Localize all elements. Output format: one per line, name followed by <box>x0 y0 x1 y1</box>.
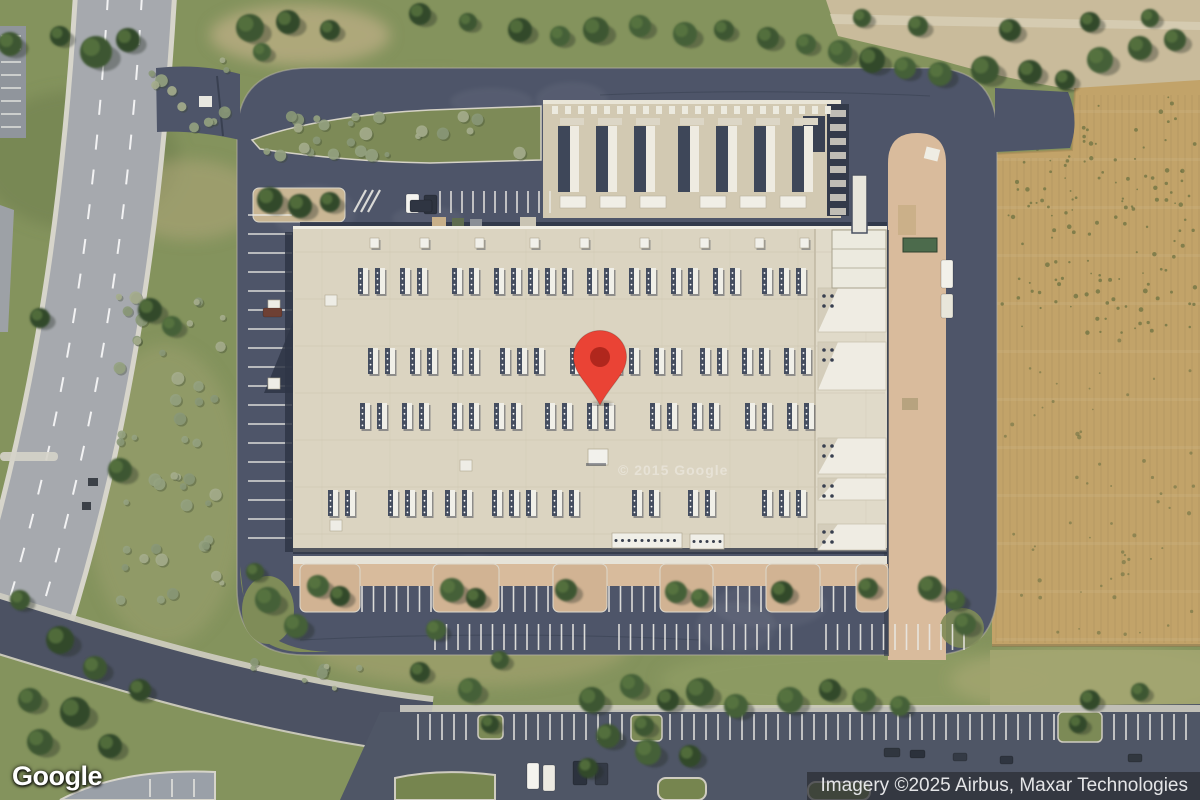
map-pin[interactable] <box>566 318 634 406</box>
map-watermark: © 2015 Google <box>618 462 728 478</box>
satellite-map[interactable]: © 2015 Google Google Imagery ©2025 Airbu… <box>0 0 1200 800</box>
attribution-text: Imagery ©2025 Airbus, Maxar Technologies <box>821 775 1188 796</box>
attribution-bar: Imagery ©2025 Airbus, Maxar Technologies <box>807 772 1200 800</box>
map-pin-hole <box>590 347 610 367</box>
google-logo[interactable]: Google <box>12 761 102 792</box>
map-pin-head <box>574 331 627 406</box>
